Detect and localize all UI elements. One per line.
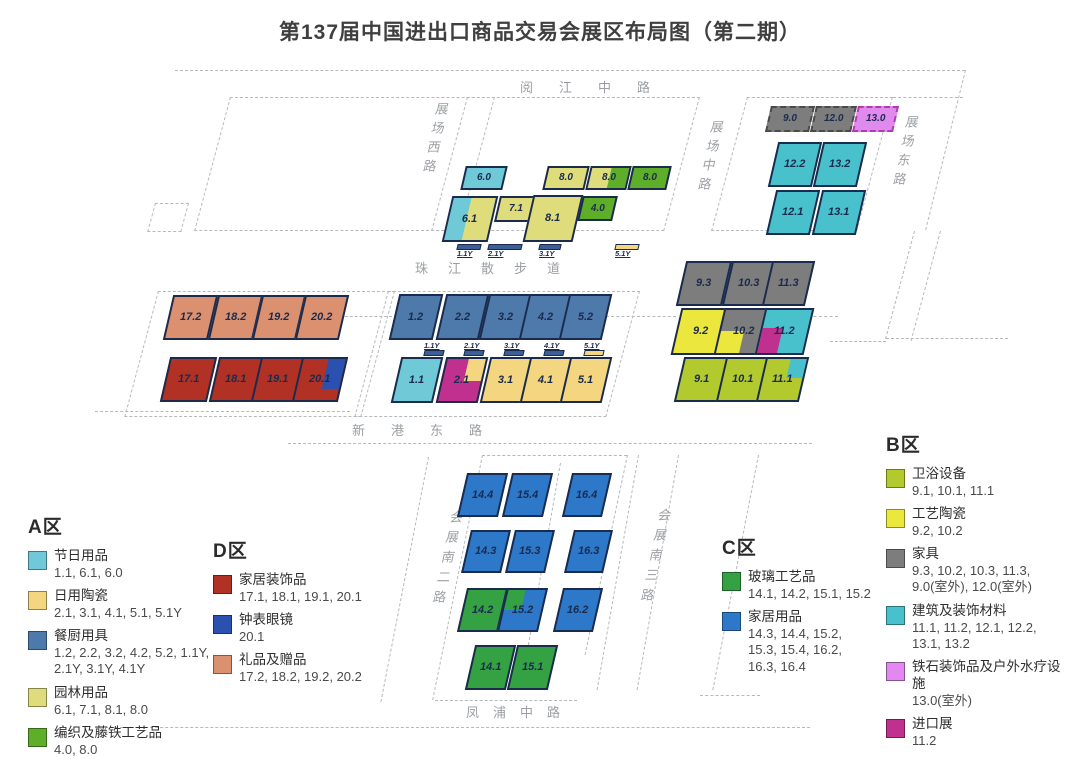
hall-block-8.0: 8.0 xyxy=(585,166,632,190)
hall-number: 12.1 xyxy=(782,207,803,218)
legend-item-text: 卫浴设备9.1, 10.1, 11.1 xyxy=(912,466,994,499)
hall-block-16.4: 16.4 xyxy=(562,473,612,517)
legend-item: 铁石装饰品及户外水疗设施13.0(室外) xyxy=(886,659,1064,709)
annex-strip-label: 2.1Y xyxy=(488,250,503,258)
hall-number: 16.4 xyxy=(576,490,597,501)
legend-hall-numbers: 2.1, 3.1, 4.1, 5.1, 5.1Y xyxy=(54,605,182,621)
hall-number: 3.2 xyxy=(498,312,513,323)
hall-number: 1.1 xyxy=(409,375,424,386)
road-dash-parcel xyxy=(147,203,189,232)
legend-color-swatch xyxy=(886,606,905,625)
hall-number: 14.4 xyxy=(472,490,493,501)
hall-number: 12.2 xyxy=(784,159,805,170)
legend-category-name: 卫浴设备 xyxy=(912,466,994,483)
road-dash-line xyxy=(482,455,627,456)
legend-item: 日用陶瓷2.1, 3.1, 4.1, 5.1, 5.1Y xyxy=(28,588,216,621)
hall-number: 16.3 xyxy=(578,546,599,557)
legend-category-name: 钟表眼镜 xyxy=(239,612,293,629)
legend-item-text: 玻璃工艺品14.1, 14.2, 15.1, 15.2 xyxy=(748,569,871,602)
legend-title-D: D区 xyxy=(213,536,398,563)
legend-item-text: 铁石装饰品及户外水疗设施13.0(室外) xyxy=(912,659,1064,709)
legend-item-text: 家居装饰品17.1, 18.1, 19.1, 20.1 xyxy=(239,572,362,605)
hall-number: 3.1 xyxy=(498,375,513,386)
legend-category-name: 家居装饰品 xyxy=(239,572,362,589)
annex-strip-1.1Y: 1.1Y xyxy=(457,244,481,258)
legend-category-name: 家居用品 xyxy=(748,609,874,626)
hall-block-13.1: 13.1 xyxy=(812,190,866,235)
legend-item: 礼品及赠品17.2, 18.2, 19.2, 20.2 xyxy=(213,652,398,685)
hall-block-15.2: 15.2 xyxy=(497,588,548,632)
hall-number: 9.2 xyxy=(693,326,708,337)
annex-strip-label: 5.1Y xyxy=(615,250,630,258)
annex-strip-2.1Y: 2.1Y xyxy=(464,342,484,356)
legend-category-name: 家具 xyxy=(912,546,1064,563)
legend-hall-numbers: 14.3, 14.4, 15.2, 15.3, 15.4, 16.2, 16.3… xyxy=(748,626,874,675)
hall-block-15.1: 15.1 xyxy=(507,645,558,690)
legend-item-text: 建筑及装饰材料11.1, 11.2, 12.1, 12.2, 13.1, 13.… xyxy=(912,603,1064,652)
annex-strip-bar xyxy=(614,244,639,250)
hall-number: 14.2 xyxy=(472,605,493,616)
legend-category-name: 玻璃工艺品 xyxy=(748,569,871,586)
legend-category-name: 礼品及赠品 xyxy=(239,652,362,669)
hall-number: 2.1 xyxy=(454,375,469,386)
hall-number: 15.2 xyxy=(512,605,533,616)
hall-number: 17.2 xyxy=(180,312,201,323)
hall-number: 18.1 xyxy=(225,374,246,385)
legend-category-name: 餐厨用具 xyxy=(54,628,216,645)
legend-item: 餐厨用具1.2, 2.2, 3.2, 4.2, 5.2, 1.1Y, 2.1Y,… xyxy=(28,628,216,677)
hall-block-14.3: 14.3 xyxy=(461,530,511,573)
road-dash-line xyxy=(886,338,1008,339)
annex-strip-label: 3.1Y xyxy=(539,250,554,258)
annex-strip-label: 1.1Y xyxy=(424,342,439,350)
annex-strip-3.1Y: 3.1Y xyxy=(539,244,561,258)
hall-number: 10.2 xyxy=(733,326,754,337)
hall-block-8.0: 8.0 xyxy=(542,166,590,190)
legend-title-A: A区 xyxy=(28,512,216,539)
hall-number: 18.2 xyxy=(225,312,246,323)
hall-block-13.0: 13.0 xyxy=(852,106,899,132)
hall-number: 1.2 xyxy=(408,312,423,323)
annex-strip-bar xyxy=(456,244,481,250)
hall-number: 8.0 xyxy=(559,173,573,183)
hall-block-11.3: 11.3 xyxy=(762,261,815,306)
legend-color-swatch xyxy=(886,509,905,528)
hall-block-16.2: 16.2 xyxy=(553,588,603,632)
annex-strip-4.1Y: 4.1Y xyxy=(544,342,564,356)
hall-number: 9.1 xyxy=(694,374,709,385)
legend-item: 卫浴设备9.1, 10.1, 11.1 xyxy=(886,466,1064,499)
legend-hall-numbers: 9.3, 10.2, 10.3, 11.3, 9.0(室外), 12.0(室外) xyxy=(912,563,1064,596)
road-label: 珠江散步道 xyxy=(415,258,580,277)
hall-block-15.3: 15.3 xyxy=(505,530,555,573)
legend-hall-numbers: 4.0, 8.0 xyxy=(54,742,162,758)
hall-number: 11.3 xyxy=(778,278,799,289)
annex-strip-label: 2.1Y xyxy=(464,342,479,350)
hall-number: 11.1 xyxy=(772,374,793,385)
legend-hall-numbers: 1.2, 2.2, 3.2, 4.2, 5.2, 1.1Y, 2.1Y, 3.1… xyxy=(54,645,216,678)
legend-zone-A: A区节日用品1.1, 6.1, 6.0日用陶瓷2.1, 3.1, 4.1, 5.… xyxy=(28,512,216,759)
legend-color-swatch xyxy=(28,591,47,610)
legend-item: 钟表眼镜20.1 xyxy=(213,612,398,645)
legend-hall-numbers: 6.1, 7.1, 8.1, 8.0 xyxy=(54,702,148,718)
annex-strip-5.1Y: 5.1Y xyxy=(615,244,639,258)
legend-hall-numbers: 9.1, 10.1, 11.1 xyxy=(912,483,994,499)
legend-color-swatch xyxy=(28,631,47,650)
hall-block-16.3: 16.3 xyxy=(564,530,613,573)
annex-strip-label: 3.1Y xyxy=(504,342,519,350)
legend-item: 家居用品14.3, 14.4, 15.2, 15.3, 15.4, 16.2, … xyxy=(722,609,874,675)
hall-number: 13.2 xyxy=(829,159,850,170)
legend-hall-numbers: 11.2 xyxy=(912,733,953,749)
venue-map: 第137届中国进出口商品交易会展区布局图（第二期） 阅江中路珠江散步道新港东路凤… xyxy=(0,0,1080,759)
hall-number: 20.2 xyxy=(311,312,332,323)
legend-item-text: 餐厨用具1.2, 2.2, 3.2, 4.2, 5.2, 1.1Y, 2.1Y,… xyxy=(54,628,216,677)
legend-color-swatch xyxy=(28,688,47,707)
annex-strip-3.1Y: 3.1Y xyxy=(504,342,524,356)
hall-number: 20.1 xyxy=(309,374,330,385)
hall-number: 10.1 xyxy=(732,374,753,385)
legend-item: 进口展11.2 xyxy=(886,716,1064,749)
legend-item-text: 编织及藤铁工艺品4.0, 8.0 xyxy=(54,725,162,758)
hall-block-9.0: 9.0 xyxy=(765,106,815,132)
road-dash-line xyxy=(435,700,577,701)
annex-strip-bar xyxy=(503,350,524,356)
annex-strip-bar xyxy=(543,350,564,356)
legend-hall-numbers: 17.1, 18.1, 19.1, 20.1 xyxy=(239,589,362,605)
hall-block-6.0: 6.0 xyxy=(460,166,508,190)
legend-color-swatch xyxy=(886,662,905,681)
hall-number: 13.1 xyxy=(828,207,849,218)
legend-item: 编织及藤铁工艺品4.0, 8.0 xyxy=(28,725,216,758)
hall-number: 5.1 xyxy=(578,375,593,386)
annex-strip-bar xyxy=(463,350,484,356)
annex-strip-5.1Y: 5.1Y xyxy=(584,342,604,356)
legend-item: 玻璃工艺品14.1, 14.2, 15.1, 15.2 xyxy=(722,569,874,602)
road-dash-line xyxy=(288,443,812,444)
hall-number: 10.3 xyxy=(738,278,759,289)
road-label: 会展南三路 xyxy=(634,508,674,608)
road-label: 凤浦中路 xyxy=(466,702,574,721)
hall-number: 8.0 xyxy=(643,173,657,183)
legend-item-text: 礼品及赠品17.2, 18.2, 19.2, 20.2 xyxy=(239,652,362,685)
hall-block-12.0: 12.0 xyxy=(810,106,857,132)
annex-strip-label: 5.1Y xyxy=(584,342,599,350)
hall-number: 11.2 xyxy=(774,326,795,337)
annex-strip-bar xyxy=(423,350,444,356)
hall-number: 19.2 xyxy=(268,312,289,323)
legend-title-C: C区 xyxy=(722,533,874,560)
legend-item-text: 家居用品14.3, 14.4, 15.2, 15.3, 15.4, 16.2, … xyxy=(748,609,874,675)
road-label: 新港东路 xyxy=(352,420,508,439)
legend-category-name: 进口展 xyxy=(912,716,953,733)
hall-block-8.1: 8.1 xyxy=(523,195,584,242)
page-title: 第137届中国进出口商品交易会展区布局图（第二期） xyxy=(0,16,1080,46)
legend-category-name: 铁石装饰品及户外水疗设施 xyxy=(912,659,1064,693)
legend-category-name: 日用陶瓷 xyxy=(54,588,182,605)
hall-block-11.2: 11.2 xyxy=(755,308,815,355)
legend-title-B: B区 xyxy=(886,430,1064,457)
annex-strip-label: 4.1Y xyxy=(544,342,559,350)
legend-category-name: 节日用品 xyxy=(54,548,123,565)
legend-zone-D: D区家居装饰品17.1, 18.1, 19.1, 20.1钟表眼镜20.1礼品及… xyxy=(213,536,398,692)
hall-number: 7.1 xyxy=(509,204,523,214)
hall-number: 15.4 xyxy=(517,490,538,501)
legend-color-swatch xyxy=(722,572,741,591)
legend-color-swatch xyxy=(886,719,905,738)
legend-color-swatch xyxy=(886,549,905,568)
hall-number: 15.3 xyxy=(519,546,540,557)
legend-hall-numbers: 13.0(室外) xyxy=(912,693,1064,709)
legend-color-swatch xyxy=(213,615,232,634)
legend-item-text: 园林用品6.1, 7.1, 8.1, 8.0 xyxy=(54,685,148,718)
hall-number: 4.0 xyxy=(591,204,605,214)
legend-hall-numbers: 11.1, 11.2, 12.1, 12.2, 13.1, 13.2 xyxy=(912,620,1064,653)
annex-strip-2.1Y: 2.1Y xyxy=(488,244,522,258)
hall-block-6.1: 6.1 xyxy=(442,196,499,242)
annex-strip-bar xyxy=(487,244,522,250)
hall-number: 8.1 xyxy=(545,213,560,224)
hall-block-4.0: 4.0 xyxy=(577,196,618,221)
legend-item: 家具9.3, 10.2, 10.3, 11.3, 9.0(室外), 12.0(室… xyxy=(886,546,1064,595)
annex-strip-bar xyxy=(583,350,604,356)
legend-color-swatch xyxy=(28,551,47,570)
road-dash-line xyxy=(925,70,966,230)
legend-color-swatch xyxy=(886,469,905,488)
legend-item-text: 日用陶瓷2.1, 3.1, 4.1, 5.1, 5.1Y xyxy=(54,588,182,621)
legend-color-swatch xyxy=(213,575,232,594)
legend-color-swatch xyxy=(213,655,232,674)
legend-category-name: 工艺陶瓷 xyxy=(912,506,966,523)
hall-number: 14.1 xyxy=(480,662,501,673)
road-dash-line xyxy=(893,97,963,98)
legend-zone-C: C区玻璃工艺品14.1, 14.2, 15.1, 15.2家居用品14.3, 1… xyxy=(722,533,874,682)
hall-block-11.1: 11.1 xyxy=(756,357,809,402)
legend-hall-numbers: 1.1, 6.1, 6.0 xyxy=(54,565,123,581)
hall-number: 12.0 xyxy=(824,114,843,124)
legend-hall-numbers: 9.2, 10.2 xyxy=(912,523,966,539)
hall-number: 6.1 xyxy=(462,214,477,225)
hall-block-8.0: 8.0 xyxy=(627,166,672,190)
annex-strip-bar xyxy=(538,244,561,250)
road-dash-line xyxy=(885,231,915,339)
hall-number: 14.3 xyxy=(475,546,496,557)
legend-item-text: 钟表眼镜20.1 xyxy=(239,612,293,645)
hall-number: 2.2 xyxy=(455,312,470,323)
hall-number: 5.2 xyxy=(578,312,593,323)
hall-number: 9.0 xyxy=(783,114,797,124)
road-dash-line xyxy=(911,231,941,341)
legend-category-name: 编织及藤铁工艺品 xyxy=(54,725,162,742)
legend-category-name: 建筑及装饰材料 xyxy=(912,603,1064,620)
road-dash-line xyxy=(700,695,760,696)
annex-strip-label: 1.1Y xyxy=(457,250,472,258)
legend-item: 建筑及装饰材料11.1, 11.2, 12.1, 12.2, 13.1, 13.… xyxy=(886,603,1064,652)
hall-number: 4.1 xyxy=(538,375,553,386)
hall-number: 9.3 xyxy=(696,278,711,289)
legend-category-name: 园林用品 xyxy=(54,685,148,702)
legend-zone-B: B区卫浴设备9.1, 10.1, 11.1工艺陶瓷9.2, 10.2家具9.3,… xyxy=(886,430,1064,756)
legend-item-text: 进口展11.2 xyxy=(912,716,953,749)
hall-number: 8.0 xyxy=(602,173,616,183)
legend-item: 节日用品1.1, 6.1, 6.0 xyxy=(28,548,216,581)
hall-number: 17.1 xyxy=(178,374,199,385)
legend-color-swatch xyxy=(722,612,741,631)
road-label: 展场中路 xyxy=(692,120,727,196)
hall-number: 15.1 xyxy=(522,662,543,673)
road-label: 阅江中路 xyxy=(520,77,676,96)
legend-hall-numbers: 20.1 xyxy=(239,629,293,645)
legend-item: 家居装饰品17.1, 18.1, 19.1, 20.1 xyxy=(213,572,398,605)
hall-number: 13.0 xyxy=(866,114,885,124)
hall-number: 4.2 xyxy=(538,312,553,323)
hall-block-14.4: 14.4 xyxy=(457,473,508,517)
annex-strip-1.1Y: 1.1Y xyxy=(424,342,444,356)
legend-color-swatch xyxy=(28,728,47,747)
road-dash-line xyxy=(830,341,886,342)
legend-item: 工艺陶瓷9.2, 10.2 xyxy=(886,506,1064,539)
hall-number: 19.1 xyxy=(267,374,288,385)
legend-hall-numbers: 14.1, 14.2, 15.1, 15.2 xyxy=(748,586,871,602)
road-dash-line xyxy=(175,70,965,71)
hall-number: 16.2 xyxy=(567,605,588,616)
hall-block-15.4: 15.4 xyxy=(502,473,553,517)
legend-item-text: 家具9.3, 10.2, 10.3, 11.3, 9.0(室外), 12.0(室… xyxy=(912,546,1064,595)
legend-item-text: 节日用品1.1, 6.1, 6.0 xyxy=(54,548,123,581)
hall-number: 6.0 xyxy=(477,173,491,183)
legend-item-text: 工艺陶瓷9.2, 10.2 xyxy=(912,506,966,539)
legend-item: 园林用品6.1, 7.1, 8.1, 8.0 xyxy=(28,685,216,718)
legend-hall-numbers: 17.2, 18.2, 19.2, 20.2 xyxy=(239,669,362,685)
